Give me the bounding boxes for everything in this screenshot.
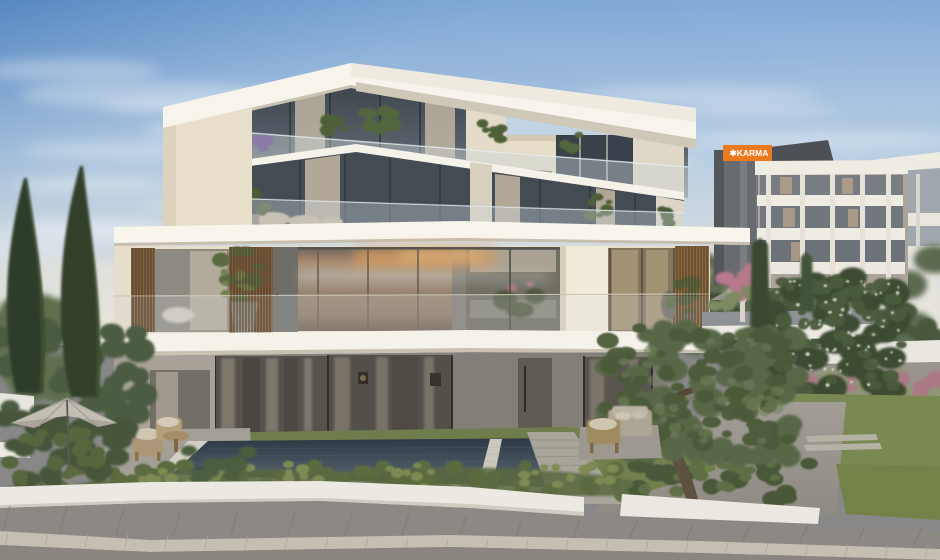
- svg-text:✱KARMA: ✱KARMA: [730, 148, 769, 158]
